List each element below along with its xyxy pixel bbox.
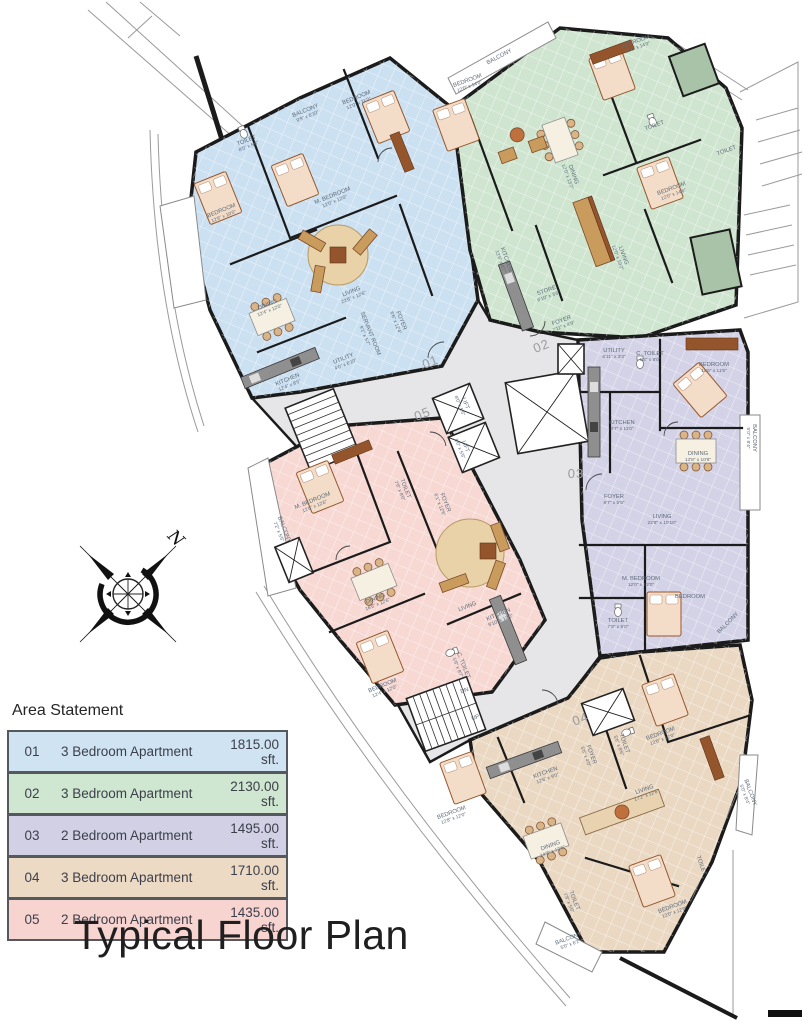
unit-no-cell: 04 [8, 857, 55, 899]
unit-number-03: 03 [568, 466, 584, 481]
svg-text:TOILET: TOILET [608, 618, 629, 624]
unit-no-cell: 05 [8, 899, 55, 941]
svg-text:UTILITY: UTILITY [603, 348, 625, 354]
table-row: 04 3 Bedroom Apartment 1710.00 sft. [8, 857, 287, 899]
round-living-rug [436, 519, 509, 592]
svg-text:22'8" x 10'10": 22'8" x 10'10" [648, 520, 677, 526]
svg-text:7'8" x 5'0": 7'8" x 5'0" [608, 624, 629, 630]
table-row: 01 3 Bedroom Apartment 1815.00 sft. [8, 731, 287, 773]
svg-text:5'0" x 8'4": 5'0" x 8'4" [745, 428, 751, 449]
north-label: N [162, 525, 188, 551]
svg-text:13'8" x 10'8": 13'8" x 10'8" [685, 457, 712, 463]
svg-text:BEDROOM: BEDROOM [675, 594, 705, 600]
unit-area-cell: 1815.00 sft. [223, 731, 287, 773]
area-statement-heading: Area Statement [12, 702, 123, 720]
svg-text:LIVING: LIVING [652, 514, 671, 520]
unit-area-cell: 1710.00 sft. [223, 857, 287, 899]
service-lift-shaft [505, 370, 588, 453]
table-row: 03 2 Bedroom Apartment 1495.00 sft. [8, 815, 287, 857]
table-row: 02 3 Bedroom Apartment 2130.00 sft. [8, 773, 287, 815]
duct-shaft [558, 344, 584, 374]
area-statement-table: 01 3 Bedroom Apartment 1815.00 sft. 02 3… [7, 730, 288, 941]
svg-text:M. BEDROOM: M. BEDROOM [622, 576, 660, 582]
unit-type-cell: 3 Bedroom Apartment [55, 731, 223, 773]
svg-text:DINING: DINING [688, 451, 709, 457]
floor-plan-page: { "title": "Typical Floor Plan", "compas… [0, 0, 804, 1022]
unit-area-cell: 1495.00 sft. [223, 815, 287, 857]
svg-text:12'0" x 12'0": 12'0" x 12'0" [628, 582, 655, 588]
room-label: BEDROOM [675, 594, 705, 600]
unit-no-cell: 03 [8, 815, 55, 857]
kitchen-counter [588, 367, 600, 457]
svg-text:FOYER: FOYER [604, 494, 624, 500]
page-title: Typical Floor Plan [74, 912, 409, 959]
svg-text:5'3" x 8'0": 5'3" x 8'0" [640, 357, 661, 363]
unit-type-cell: 3 Bedroom Apartment [55, 773, 223, 815]
compass-rose: N [80, 525, 189, 642]
svg-text:BALCONY: BALCONY [751, 424, 757, 452]
unit-type-cell: 3 Bedroom Apartment [55, 857, 223, 899]
svg-text:11'6" x 11'5": 11'6" x 11'5" [701, 368, 727, 374]
room-label: BEDROOM12'8" x 12'0" [437, 805, 469, 827]
svg-text:8'7" x 5'5": 8'7" x 5'5" [604, 500, 625, 506]
svg-text:8'7" x 11'0": 8'7" x 11'0" [610, 426, 634, 432]
unit-no-cell: 02 [8, 773, 55, 815]
svg-text:C. TOILET: C. TOILET [636, 351, 664, 357]
unit-area-cell: 2130.00 sft. [223, 773, 287, 815]
svg-text:KITCHEN: KITCHEN [609, 420, 634, 426]
wc-fixture [615, 604, 622, 617]
unit-type-cell: 2 Bedroom Apartment [55, 815, 223, 857]
unit-no-cell: 01 [8, 731, 55, 773]
svg-text:BEDROOM: BEDROOM [699, 362, 729, 368]
svg-text:6'11" x 3'3": 6'11" x 3'3" [602, 354, 626, 360]
